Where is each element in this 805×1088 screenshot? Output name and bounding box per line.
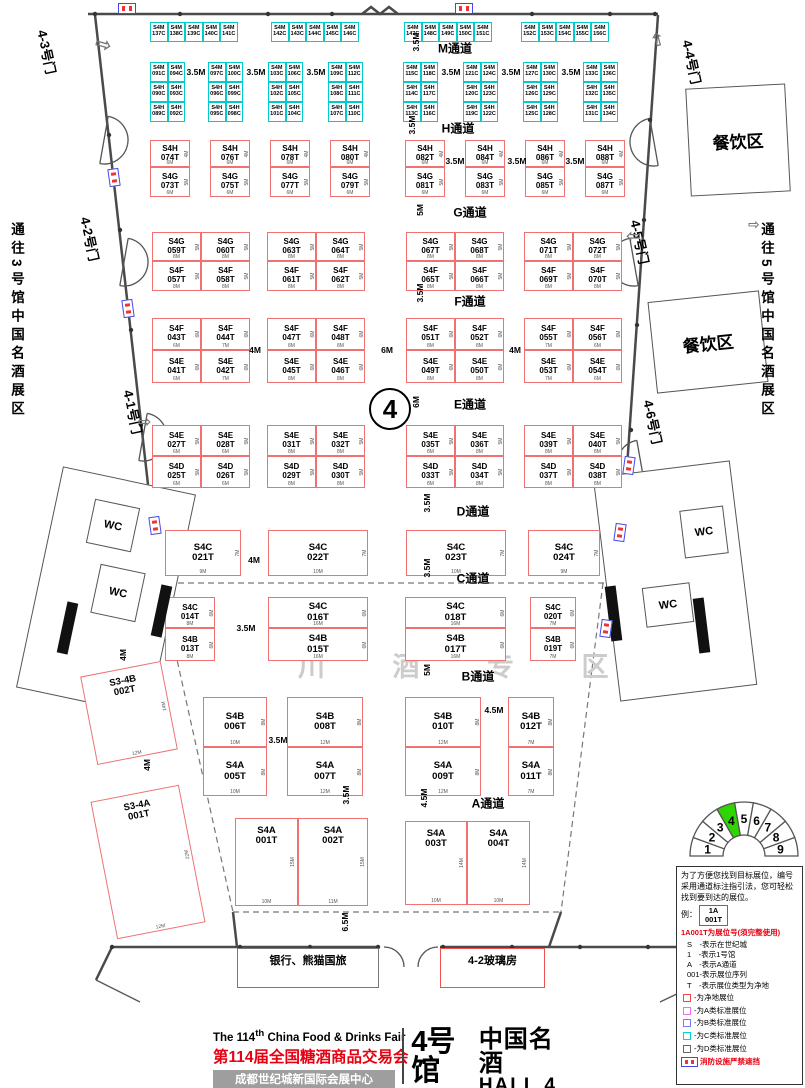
venue-name: 成都世纪城新国际会展中心 xyxy=(213,1070,395,1088)
dimension-label: 4M xyxy=(249,345,261,355)
booth-S4F-066T: S4F066T8M5M xyxy=(455,261,504,291)
booth-S4E-028T: S4E028T6M5M xyxy=(201,425,250,456)
area-WC: WC xyxy=(679,505,729,558)
booth-width-dim: 16M xyxy=(406,622,505,627)
booth-S4B-017T: S4B017T16M6M xyxy=(405,628,506,661)
booth-number: 090C xyxy=(152,92,165,98)
booth-depth-dim: 6M xyxy=(571,641,576,648)
booth-S4H-110C: S4H110C xyxy=(346,102,364,122)
legend-code-line: 001-表示展位序列 xyxy=(687,970,798,980)
booth-S4A-007T: S4A007T12M8M xyxy=(287,747,363,796)
booth-number: 013T xyxy=(181,645,199,654)
booth-number: 134C xyxy=(603,112,616,118)
dimension-label-vertical: 3.5M xyxy=(341,786,351,805)
booth-width-dim: 11M xyxy=(299,900,367,905)
booth-depth-dim: 5M xyxy=(185,179,190,186)
fire-hydrant-icon xyxy=(118,3,136,14)
booth-S4H-111C: S4H111C xyxy=(346,82,364,102)
booth-S4G-059T: S4G059T8M5M xyxy=(152,232,201,261)
fan-hall-number: 4 xyxy=(728,814,735,828)
booth-S4G-087T: S4G087T6M5M xyxy=(585,167,625,197)
booth-width-dim: 6M xyxy=(151,161,189,166)
booth-width-dim: 8M xyxy=(407,377,454,382)
booth-width-dim: 10M xyxy=(468,899,529,904)
booth-width-dim: 6M xyxy=(151,191,189,196)
booth-number: 036T xyxy=(470,441,488,450)
booth-number: 098C xyxy=(228,112,241,118)
booth-number: 027T xyxy=(167,441,185,450)
booth-number: 044T xyxy=(216,334,234,343)
booth-depth-dim: 22M xyxy=(185,849,192,860)
booth-depth-dim: 4M xyxy=(245,150,250,157)
legend-example-label: 例： xyxy=(681,910,697,921)
booth-S4E-054T: S4E054T6M6M xyxy=(573,350,622,383)
booth-number: 047T xyxy=(282,334,300,343)
booth-S4G-085T: S4G085T6M5M xyxy=(525,167,565,197)
dimension-label-vertical: 3.5M xyxy=(407,116,417,135)
booth-depth-dim: 5M xyxy=(617,243,622,250)
fan-hall-number: 2 xyxy=(709,831,716,845)
booth-depth-dim: 6M xyxy=(363,641,368,648)
booth-width-dim: 6M xyxy=(202,450,249,455)
booth-number: 128C xyxy=(543,112,556,118)
corridor-label: 通往3号馆中国名酒展区 xyxy=(6,222,26,420)
booth-S4H-096C: S4H096C xyxy=(208,82,226,102)
booth-number: 116C xyxy=(423,112,436,118)
booth-S4H-082T: S4H082T6M4M xyxy=(405,140,445,167)
booth-depth-dim: 5M xyxy=(499,273,504,280)
booth-S4B-008T: S4B008T12M8M xyxy=(287,697,363,747)
dimension-label: 3.5M xyxy=(508,156,527,166)
booth-S4G-072T: S4G072T8M5M xyxy=(573,232,622,261)
booth-S4E-042T: S4E042T7M6M xyxy=(201,350,250,383)
booth-number: 002T xyxy=(113,685,136,699)
booth-number: 101C xyxy=(270,112,283,118)
booth-width-dim: 6M xyxy=(271,191,309,196)
booth-S4H-098C: S4H098C xyxy=(226,102,244,122)
booth-S4E-053T: S4E053T7M6M xyxy=(524,350,573,383)
booth-S4G-075T: S4G075T6M5M xyxy=(210,167,250,197)
booth-depth-dim: 5M xyxy=(617,273,622,280)
booth-width-dim: 8M xyxy=(407,255,454,260)
booth-S4C-020T: S4C020T7M6M xyxy=(530,597,576,628)
booth-S4D-038T: S4D038T8M5M xyxy=(573,456,622,488)
booth-number: 146C xyxy=(343,32,356,38)
booth-S4E-027T: S4E027T6M5M xyxy=(152,425,201,456)
booth-depth-dim: 4M xyxy=(500,150,505,157)
dimension-label-vertical: 4M xyxy=(142,759,152,771)
booth-width-dim: 7M xyxy=(525,344,572,349)
booth-number: 010T xyxy=(432,722,454,732)
booth-number: 032T xyxy=(331,441,349,450)
dimension-label: 4.5M xyxy=(485,705,504,715)
booth-S4H-129C: S4H129C xyxy=(541,82,559,102)
booth-number: 035T xyxy=(421,441,439,450)
booth-depth-dim: 5M xyxy=(360,273,365,280)
dimension-label-vertical: 4.5M xyxy=(419,789,429,808)
dimension-label: 3.5M xyxy=(247,67,266,77)
booth-number: 137C xyxy=(152,32,165,38)
booth-depth-dim: 15M xyxy=(291,857,296,867)
booth-number: 005T xyxy=(224,772,246,782)
booth-prefix: S4B xyxy=(309,634,327,644)
booth-width-dim: 8M xyxy=(166,655,214,660)
booth-depth-dim: 7M xyxy=(501,550,506,557)
booth-depth-dim: 5M xyxy=(360,469,365,476)
booth-width-dim: 7M xyxy=(202,377,249,382)
booth-depth-dim: 5M xyxy=(499,469,504,476)
booth-depth-dim: 6M xyxy=(245,331,250,338)
fire-equipment-icon xyxy=(681,1057,698,1067)
booth-width-dim: 8M xyxy=(268,344,315,349)
booth-width-dim: 8M xyxy=(153,255,200,260)
booth-S4E-039T: S4E039T8M5M xyxy=(524,425,573,456)
booth-S4E-045T: S4E045T8M6M xyxy=(267,350,316,383)
booth-S4B-010T: S4B010T12M8M xyxy=(405,697,481,747)
booth-number: 028T xyxy=(216,441,234,450)
booth-number: 152C xyxy=(523,32,536,38)
booth-width-dim: 16M xyxy=(406,655,505,660)
booth-S4B-015T: S4B015T16M6M xyxy=(268,628,368,661)
booth-type-swatch xyxy=(683,1045,691,1053)
booth-S4M-115C: S4M115C xyxy=(403,62,421,82)
booth-width-dim: 8M xyxy=(268,377,315,382)
booth-number: 103C xyxy=(270,72,283,78)
booth-width-dim: 8M xyxy=(525,255,572,260)
booth-S4H-076T: S4H076T6M4M xyxy=(210,140,250,167)
booth-number: 107C xyxy=(330,112,343,118)
booth-depth-dim: 5M xyxy=(560,179,565,186)
dimension-label: 3.5M xyxy=(442,67,461,77)
booth-number: 102C xyxy=(270,92,283,98)
swatch-label: -为A类标准展位 xyxy=(694,1006,747,1016)
booth-S4G-071T: S4G071T8M5M xyxy=(524,232,573,261)
booth-S4M-146C: S4M146C xyxy=(341,22,359,42)
booth-number: 123C xyxy=(483,92,496,98)
booth-S4E-040T: S4E040T8M5M xyxy=(573,425,622,456)
booth-depth-dim: 6M xyxy=(617,363,622,370)
booth-S4M-151C: S4M151C xyxy=(474,22,492,42)
booth-width-dim: 6M xyxy=(526,191,564,196)
booth-S4H-105C: S4H105C xyxy=(286,82,304,102)
booth-depth-dim: 6M xyxy=(617,331,622,338)
dimension-label: 3.5M xyxy=(187,67,206,77)
booth-width-dim: 6M xyxy=(331,191,369,196)
booth-number: 151C xyxy=(476,32,489,38)
booth-S4M-142C: S4M142C xyxy=(271,22,289,42)
booth-S4F-065T: S4F065T8M5M xyxy=(406,261,455,291)
booth-width-dim: 8M xyxy=(268,482,315,487)
booth-S4B-019T: S4B019T7M6M xyxy=(530,628,576,661)
booth-S4H-134C: S4H134C xyxy=(601,102,619,122)
booth-number: 033T xyxy=(421,472,439,481)
aisle-label: F通道 xyxy=(454,293,485,310)
booth-S4M-140C: S4M140C xyxy=(203,22,221,42)
booth-width-dim: 8M xyxy=(407,450,454,455)
booth-width-dim: 8M xyxy=(268,255,315,260)
booth-width-dim: 7M xyxy=(509,790,553,795)
booth-width-dim: 8M xyxy=(456,377,503,382)
booth-S4G-083T: S4G083T6M5M xyxy=(465,167,505,197)
booth-depth-dim: 5M xyxy=(499,437,504,444)
aisle-label: H通道 xyxy=(442,120,475,137)
booth-width-dim: 6M xyxy=(406,161,444,166)
booth-S4M-100C: S4M100C xyxy=(226,62,244,82)
booth-S4C-022T: S4C022T10M7M xyxy=(268,530,368,576)
booth-S4H-090C: S4H090C xyxy=(150,82,168,102)
booth-depth-dim: 7M xyxy=(236,550,241,557)
booth-width-dim: 8M xyxy=(202,255,249,260)
booth-width-dim: 16M xyxy=(269,622,367,627)
booth-S4H-078T: S4H078T6M4M xyxy=(270,140,310,167)
booth-depth-dim: 8M xyxy=(476,719,481,726)
booth-prefix: S4A xyxy=(226,761,244,771)
booth-S4M-127C: S4M127C xyxy=(523,62,541,82)
booth-S4E-041T: S4E041T6M6M xyxy=(152,350,201,383)
booth-number: 135C xyxy=(603,92,616,98)
booth-number: 138C xyxy=(170,32,183,38)
dimension-label-vertical: 3.5M xyxy=(415,284,425,303)
booth-width-dim: 7M xyxy=(202,344,249,349)
booth-depth-dim: 6M xyxy=(210,641,215,648)
booth-S4H-116C: S4H116C xyxy=(421,102,439,122)
booth-width-dim: 6M xyxy=(574,344,621,349)
fire-hydrant-icon xyxy=(148,516,161,535)
booth-number: 046T xyxy=(331,367,349,376)
booth-number: 001T xyxy=(256,836,278,846)
booth-width-dim: 6M xyxy=(211,161,249,166)
booth-width-dim: 10M xyxy=(406,899,466,904)
fire-hydrant-icon xyxy=(121,299,134,318)
booth-number: 095C xyxy=(210,112,223,118)
booth-number: 144C xyxy=(308,32,321,38)
booth-depth-dim: 6M xyxy=(499,331,504,338)
booth-S4C-018T: S4C018T16M6M xyxy=(405,597,506,628)
booth-number: 041T xyxy=(167,367,185,376)
booth-number: 093C xyxy=(170,92,183,98)
swatch-label: -为C类标准展位 xyxy=(694,1031,747,1041)
booth-S4D-037T: S4D037T8M5M xyxy=(524,456,573,488)
booth-number: 126C xyxy=(525,92,538,98)
booth-prefix: S4C xyxy=(446,602,464,612)
booth-depth-dim: 5M xyxy=(245,273,250,280)
booth-depth-dim: 6M xyxy=(499,363,504,370)
booth-number: 040T xyxy=(588,441,606,450)
dimension-label: 3.5M xyxy=(307,67,326,77)
booth-S4H-095C: S4H095C xyxy=(208,102,226,122)
booth-number: 120C xyxy=(465,92,478,98)
example-booth-line2: 001T xyxy=(705,915,722,924)
booth-number: 089C xyxy=(152,112,165,118)
booth-S4H-089C: S4H089C xyxy=(150,102,168,122)
dimension-label-vertical: 6.5M xyxy=(340,913,350,932)
booth-number: 099C xyxy=(228,92,241,98)
booth-number: 136C xyxy=(603,72,616,78)
booth-S4C-016T: S4C016T16M6M xyxy=(268,597,368,628)
booth-number: 054T xyxy=(588,367,606,376)
booth-S4H-080T: S4H080T6M4M xyxy=(330,140,370,167)
area-4-2玻璃房: 4-2玻璃房 xyxy=(440,948,545,988)
booth-S4E-046T: S4E046T8M6M xyxy=(316,350,365,383)
fair-title-en: The 114th China Food & Drinks Fair xyxy=(213,1028,395,1044)
booth-width-dim: 6M xyxy=(466,191,504,196)
legend-intro: 为了方便您找到目标展位，编号采用通道标注指引法，您可轻松找到要到达的展位。 xyxy=(681,871,798,903)
booth-S4M-145C: S4M145C xyxy=(324,22,342,42)
booth-depth-dim: 6M xyxy=(360,363,365,370)
booth-width-dim: 10M xyxy=(204,741,266,746)
legend-box: 为了方便您找到目标展位，编号采用通道标注指引法，您可轻松找到要到达的展位。 例：… xyxy=(676,866,803,1085)
booth-number: 149C xyxy=(441,32,454,38)
booth-number: 096C xyxy=(210,92,223,98)
hall-name-en: HALL 4 xyxy=(479,1076,573,1088)
booth-number: 021T xyxy=(192,553,214,563)
booth-S4F-044T: S4F044T7M6M xyxy=(201,318,250,350)
booth-number: 131C xyxy=(585,112,598,118)
booth-prefix: S4C xyxy=(309,602,327,612)
dimension-label-vertical: 6M xyxy=(411,396,421,408)
booth-S4H-125C: S4H125C xyxy=(523,102,541,122)
booth-depth-dim: 5M xyxy=(440,179,445,186)
booth-S4E-036T: S4E036T8M5M xyxy=(455,425,504,456)
booth-depth-dim: 8M xyxy=(358,768,363,775)
booth-depth-dim: 14M xyxy=(460,858,465,868)
aisle-label: C通道 xyxy=(457,570,490,587)
booth-number: 097C xyxy=(210,72,223,78)
booth-S4H-101C: S4H101C xyxy=(268,102,286,122)
booth-number: 111C xyxy=(348,92,361,98)
booth-number: 055T xyxy=(539,334,557,343)
booth-S4H-092C: S4H092C xyxy=(168,102,186,122)
title-divider xyxy=(402,1028,404,1084)
fan-hall-number: 1 xyxy=(704,843,711,857)
booth-number: 007T xyxy=(314,772,336,782)
booth-number: 053T xyxy=(539,367,557,376)
booth-number: 092C xyxy=(170,112,183,118)
booth-S4M-103C: S4M103C xyxy=(268,62,286,82)
entry-arrow-icon: ⇨ xyxy=(748,216,760,233)
booth-number: 130C xyxy=(543,72,556,78)
booth-depth-dim: 6M xyxy=(501,641,506,648)
booth-S4E-049T: S4E049T8M6M xyxy=(406,350,455,383)
booth-number: 115C xyxy=(405,72,418,78)
booth-S4M-097C: S4M097C xyxy=(208,62,226,82)
booth-number: 091C xyxy=(152,72,165,78)
booth-number: 133C xyxy=(585,72,598,78)
booth-S4M-109C: S4M109C xyxy=(328,62,346,82)
booth-depth-dim: 5M xyxy=(245,469,250,476)
booth-width-dim: 6M xyxy=(202,482,249,487)
booth-number: 129C xyxy=(543,92,556,98)
booth-S4F-056T: S4F056T6M6M xyxy=(573,318,622,350)
booth-width-dim: 6M xyxy=(153,377,200,382)
dimension-label-vertical: 3.5M xyxy=(422,559,432,578)
legend-code-line: 1 -表示1号馆 xyxy=(687,950,798,960)
booth-width-dim: 7M xyxy=(531,655,575,660)
booth-S4H-108C: S4H108C xyxy=(328,82,346,102)
entry-arrow-icon: ⇦ xyxy=(626,226,641,247)
booth-depth-dim: 8M xyxy=(262,719,267,726)
booth-width-dim: 16M xyxy=(269,655,367,660)
booth-number: 108C xyxy=(330,92,343,98)
booth-S4E-035T: S4E035T8M5M xyxy=(406,425,455,456)
booth-depth-dim: 6M xyxy=(501,609,506,616)
booth-number: 132C xyxy=(585,92,598,98)
booth-depth-dim: 6M xyxy=(363,609,368,616)
booth-number: 029T xyxy=(282,472,300,481)
booth-number: 001T xyxy=(127,809,150,823)
booth-depth-dim: 8M xyxy=(358,719,363,726)
booth-number: 008T xyxy=(314,722,336,732)
booth-S4H-122C: S4H122C xyxy=(481,102,499,122)
booth-S4A-011T: S4A011T7M8M xyxy=(508,747,554,796)
booth-number: 050T xyxy=(470,367,488,376)
booth-number: 009T xyxy=(432,772,454,782)
booth-width-dim: 8M xyxy=(525,285,572,290)
legend-code-line: S -表示在世纪城 xyxy=(687,940,798,950)
bottom-door-arcs xyxy=(96,947,706,1002)
booth-depth-dim: 5M xyxy=(365,179,370,186)
booth-prefix: S4A xyxy=(522,761,540,771)
booth-number: 124C xyxy=(483,72,496,78)
booth-number: 025T xyxy=(167,472,185,481)
legend-booth-number-note: 1A001T为展位号(须完整使用) xyxy=(681,928,798,938)
booth-number: 148C xyxy=(424,32,437,38)
booth-number: 100C xyxy=(228,72,241,78)
booth-depth-dim: 14M xyxy=(162,701,169,712)
booth-number: 003T xyxy=(425,839,447,849)
aisle-label: G通道 xyxy=(453,204,486,221)
booth-S4M-130C: S4M130C xyxy=(541,62,559,82)
booth-S4D-029T: S4D029T8M5M xyxy=(267,456,316,488)
booth-number: 156C xyxy=(593,32,606,38)
area-银行、熊猫国旅: 银行、熊猫国旅 xyxy=(237,948,379,988)
booth-number: 117C xyxy=(423,92,436,98)
dimension-label-vertical: 5M xyxy=(422,664,432,676)
hall-overview-fan: 123456789 xyxy=(686,788,805,862)
booth-width-dim: 8M xyxy=(407,344,454,349)
booth-S4H-093C: S4H093C xyxy=(168,82,186,102)
booth-number: 142C xyxy=(273,32,286,38)
booth-width-dim: 8M xyxy=(202,285,249,290)
booth-S4M-144C: S4M144C xyxy=(306,22,324,42)
booth-S4M-091C: S4M091C xyxy=(150,62,168,82)
booth-depth-dim: 4M xyxy=(620,150,625,157)
booth-number: 114C xyxy=(405,92,418,98)
dimension-label: 3.5M xyxy=(562,67,581,77)
booth-number: 110C xyxy=(348,112,361,118)
booth-width-dim: 8M xyxy=(317,255,364,260)
booth-S4F-062T: S4F062T8M5M xyxy=(316,261,365,291)
booth-number: 002T xyxy=(322,836,344,846)
booth-S4C-024T: S4C024T9M7M xyxy=(528,530,600,576)
hall-name-cn: 中国名酒 xyxy=(479,1028,573,1076)
aisle-label: M通道 xyxy=(438,40,472,57)
booth-width-dim: 6M xyxy=(211,191,249,196)
booth-number: 049T xyxy=(421,367,439,376)
area-餐饮区: 餐饮区 xyxy=(647,290,768,393)
booth-width-dim: 8M xyxy=(166,622,214,627)
booth-width-dim: 8M xyxy=(456,482,503,487)
booth-width-dim: 10M xyxy=(236,900,297,905)
booth-number: 121C xyxy=(465,72,478,78)
booth-width-dim: 8M xyxy=(456,450,503,455)
booth-number: 039T xyxy=(539,441,557,450)
fan-hall-number: 3 xyxy=(717,821,724,835)
booth-S4H-086T: S4H086T6M4M xyxy=(525,140,565,167)
booth-width-dim: 8M xyxy=(317,482,364,487)
booth-number: 104C xyxy=(288,112,301,118)
booth-depth-dim: 4M xyxy=(185,150,190,157)
